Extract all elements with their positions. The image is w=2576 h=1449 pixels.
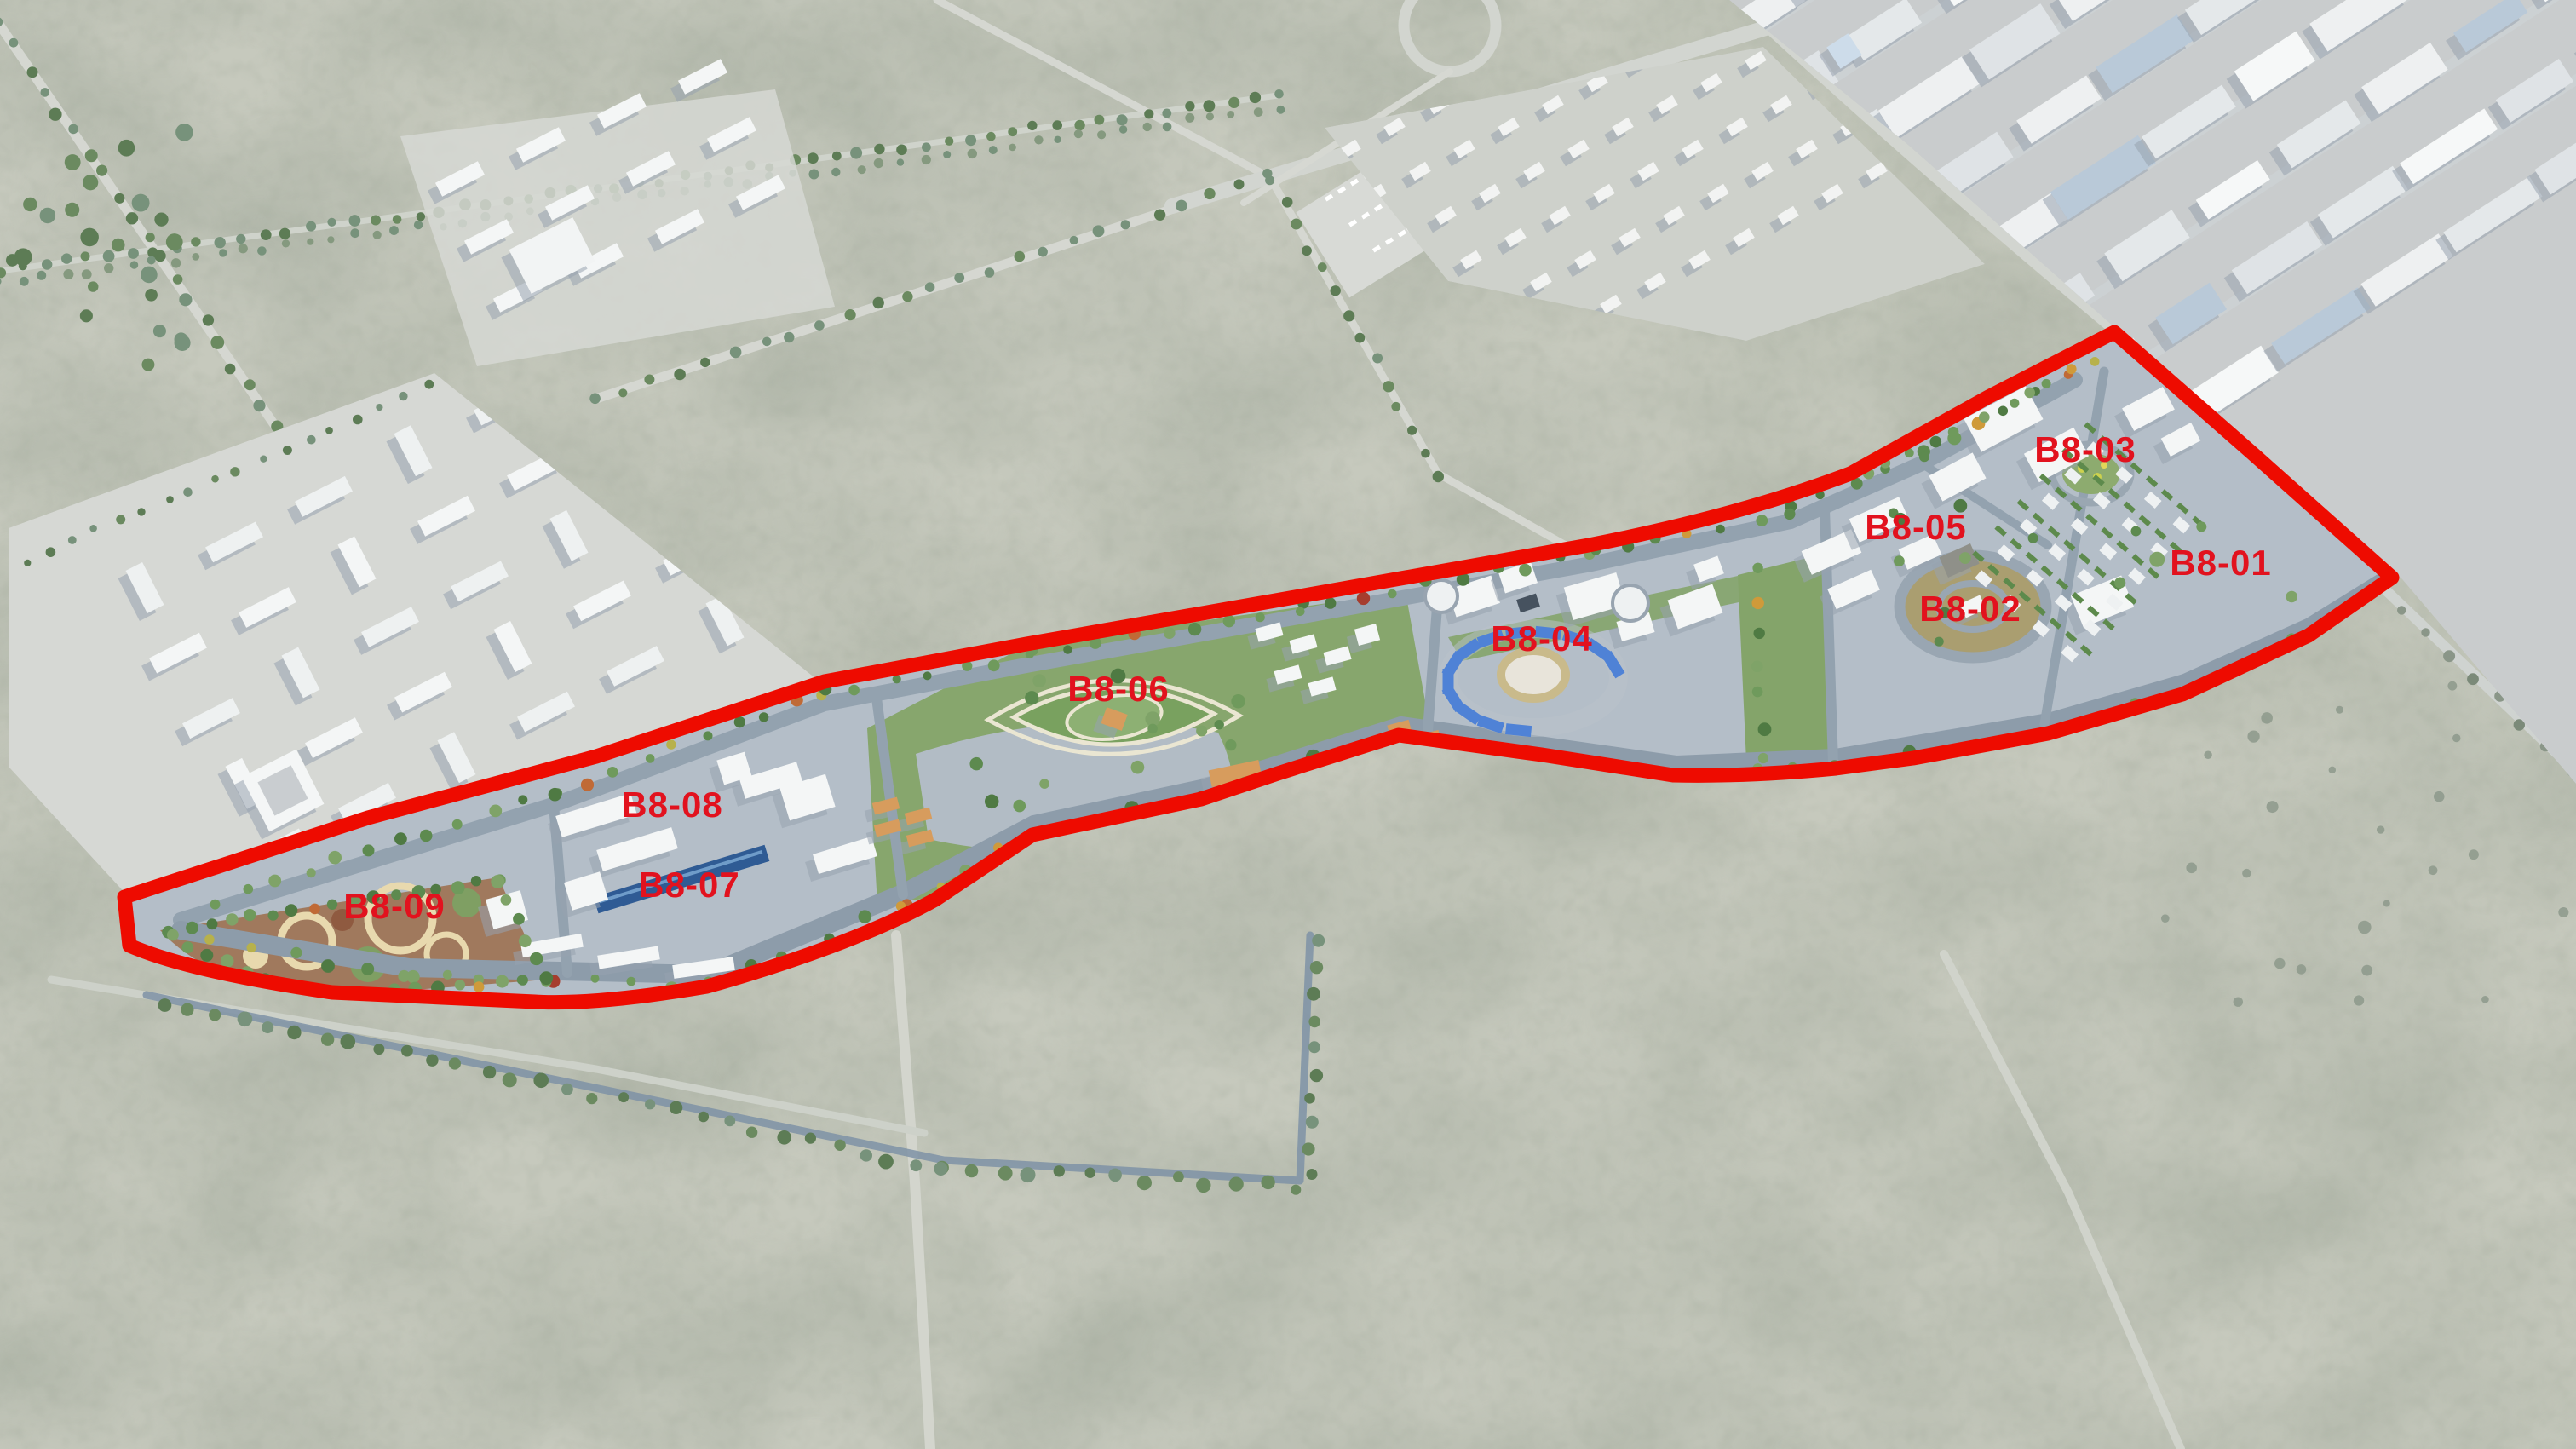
tree <box>1144 109 1153 118</box>
tree <box>873 297 884 308</box>
tree <box>200 949 213 962</box>
tree <box>784 332 794 342</box>
tree <box>1009 144 1016 152</box>
tree <box>455 980 465 990</box>
tree <box>116 515 125 524</box>
tree <box>287 1026 301 1039</box>
tree <box>1306 1116 1319 1129</box>
tree <box>192 253 199 261</box>
tree <box>376 404 382 411</box>
tree <box>257 246 267 256</box>
tree <box>1310 1069 1323 1082</box>
tree <box>371 216 381 226</box>
tree <box>1154 210 1165 221</box>
tree <box>1054 136 1061 143</box>
tree <box>501 894 512 906</box>
tree <box>321 1033 334 1046</box>
tree <box>805 1133 816 1144</box>
tree <box>934 1162 947 1176</box>
tree <box>777 1130 791 1145</box>
tree <box>204 934 215 945</box>
tree <box>1758 753 1768 763</box>
tree <box>181 941 193 953</box>
tree <box>874 144 884 154</box>
parcel-label-b8-07: B8-07 <box>638 865 739 905</box>
tree <box>474 981 485 992</box>
tree <box>363 844 375 856</box>
tree <box>1015 251 1026 262</box>
tree <box>591 975 600 983</box>
tree <box>1176 200 1187 212</box>
tree <box>1185 113 1194 123</box>
tree <box>46 547 56 557</box>
tree <box>1948 427 1959 438</box>
tree <box>49 108 61 121</box>
tree <box>699 1112 710 1123</box>
tree <box>1296 607 1305 617</box>
tree <box>85 149 98 162</box>
tree <box>244 884 254 894</box>
tree <box>858 165 866 174</box>
tree <box>627 977 636 986</box>
tree <box>1754 628 1765 639</box>
tree <box>954 273 964 283</box>
tree <box>1277 106 1285 114</box>
tree <box>1391 402 1400 411</box>
tree <box>910 1159 922 1171</box>
tree <box>878 1154 894 1170</box>
tree <box>1206 112 1214 120</box>
tree <box>1274 89 1284 99</box>
tree <box>61 253 72 263</box>
tree <box>414 221 423 229</box>
tree <box>923 671 932 680</box>
tree <box>1052 120 1062 130</box>
tree <box>373 231 382 239</box>
masterplan-aerial-view: B8-01B8-02B8-03B8-04B8-05B8-06B8-07B8-08… <box>0 0 2576 1449</box>
tree <box>1304 1093 1315 1104</box>
tree <box>618 1092 629 1102</box>
tree <box>179 293 192 306</box>
tree <box>2010 399 2019 408</box>
tree <box>893 675 901 683</box>
tree <box>1074 129 1083 138</box>
tree <box>1308 1016 1320 1028</box>
tree <box>1979 411 1990 423</box>
tree <box>137 508 145 515</box>
tree <box>327 900 337 910</box>
tree <box>285 904 298 917</box>
tree <box>20 277 29 286</box>
tree <box>834 1140 845 1151</box>
tree <box>399 392 407 400</box>
tree <box>350 228 359 238</box>
tree <box>260 456 267 463</box>
tree <box>1117 114 1128 125</box>
tree <box>68 536 77 544</box>
tree <box>1998 406 2009 417</box>
tree <box>221 954 234 968</box>
tree <box>1256 612 1265 622</box>
tree <box>1063 645 1072 653</box>
tree <box>986 132 996 141</box>
tree <box>1318 262 1327 272</box>
tree <box>724 1116 735 1127</box>
tree <box>225 364 236 375</box>
tree <box>211 475 219 483</box>
tree <box>1097 130 1106 139</box>
tree <box>700 358 710 367</box>
tree <box>471 876 481 886</box>
parcel-label-b8-09: B8-09 <box>343 886 445 926</box>
tree <box>674 369 686 381</box>
tree <box>607 767 618 778</box>
tree <box>103 250 115 262</box>
tree <box>1312 934 1325 947</box>
tree <box>1119 125 1127 133</box>
tree <box>988 659 1000 671</box>
tree <box>925 282 935 292</box>
tree <box>646 754 655 763</box>
tree <box>130 261 138 268</box>
tree <box>1291 219 1302 230</box>
tree <box>518 795 527 804</box>
tree <box>1143 123 1152 131</box>
tree <box>561 1084 573 1095</box>
tree <box>965 1164 979 1178</box>
tree <box>581 779 594 791</box>
tree <box>203 314 214 325</box>
tree <box>306 221 316 232</box>
tree <box>666 739 676 749</box>
tree <box>1331 285 1341 296</box>
tree <box>1229 1177 1244 1192</box>
tree <box>1261 1176 1274 1189</box>
tree <box>327 236 334 243</box>
tree <box>389 226 399 235</box>
tree <box>943 151 951 158</box>
tree <box>226 913 238 925</box>
tree <box>449 1057 461 1069</box>
tree <box>896 145 907 156</box>
tree <box>1203 100 1215 112</box>
tree <box>1388 589 1397 599</box>
tree <box>417 212 425 221</box>
tree <box>230 467 239 476</box>
tree <box>586 1093 597 1104</box>
tree <box>1519 564 1532 577</box>
tree <box>589 394 601 405</box>
tree <box>1095 115 1105 125</box>
tree <box>897 158 904 165</box>
parcel-label-b8-08: B8-08 <box>621 785 722 825</box>
tree <box>279 228 290 239</box>
tree <box>1188 623 1201 635</box>
tree <box>24 560 31 566</box>
tree <box>549 788 562 802</box>
tree <box>945 137 953 146</box>
tree <box>27 66 38 78</box>
tree <box>762 337 772 347</box>
tree <box>730 347 742 359</box>
tree <box>1302 1142 1314 1155</box>
tree <box>244 909 256 921</box>
tree <box>1185 101 1194 111</box>
tree <box>1372 354 1383 364</box>
tree <box>207 918 218 929</box>
tree <box>2067 364 2077 374</box>
tree <box>1085 1168 1095 1178</box>
tree <box>236 234 245 244</box>
tree <box>1784 509 1795 520</box>
tree <box>1250 92 1261 103</box>
tree <box>247 943 256 952</box>
tree <box>96 165 107 176</box>
tree <box>539 971 553 985</box>
tree <box>147 247 158 257</box>
tree <box>307 435 316 445</box>
tree <box>533 1073 549 1089</box>
tree <box>860 1149 872 1161</box>
parcel-label-b8-01: B8-01 <box>2170 543 2271 583</box>
tree <box>530 952 543 965</box>
parcel-label-b8-04: B8-04 <box>1491 618 1592 658</box>
tree <box>373 1044 384 1055</box>
tree <box>518 975 528 985</box>
tree <box>2042 379 2051 388</box>
tree <box>307 868 316 877</box>
tree <box>1070 236 1078 244</box>
tree <box>1752 687 1763 698</box>
tree <box>483 1066 496 1078</box>
tree <box>1433 471 1444 482</box>
tree <box>210 336 224 349</box>
tree <box>183 487 193 497</box>
tree <box>2024 388 2035 399</box>
tree <box>1234 179 1245 189</box>
tree <box>670 1101 682 1114</box>
tree <box>1752 563 1762 573</box>
tree <box>503 1072 517 1087</box>
tree <box>848 685 860 696</box>
tree <box>1223 615 1235 627</box>
tree <box>452 819 463 830</box>
parcel-label-b8-06: B8-06 <box>1067 669 1169 709</box>
tree <box>1307 1169 1318 1180</box>
tree <box>349 215 361 227</box>
tree <box>1027 121 1037 130</box>
tree <box>513 913 525 925</box>
tree <box>1196 1178 1210 1193</box>
tree <box>874 158 883 168</box>
tree <box>181 1003 193 1016</box>
tree <box>128 248 139 259</box>
tree <box>2090 357 2100 366</box>
tree <box>845 309 856 320</box>
tree <box>158 998 172 1012</box>
tree <box>147 256 156 265</box>
tree <box>968 149 977 158</box>
tree <box>238 1012 253 1027</box>
tree <box>104 263 113 273</box>
tree <box>307 239 313 245</box>
tree <box>1173 1171 1184 1182</box>
tree <box>239 244 248 253</box>
tree <box>37 271 46 280</box>
tree <box>283 446 292 455</box>
tree <box>328 851 342 865</box>
tree <box>173 274 183 285</box>
tree <box>519 934 532 947</box>
tree <box>309 904 320 915</box>
tree <box>985 267 995 278</box>
tree <box>82 269 92 279</box>
tree <box>1282 197 1293 208</box>
tree <box>1357 592 1370 605</box>
tree <box>859 910 871 923</box>
tree <box>424 380 434 389</box>
tree <box>394 832 407 845</box>
tree <box>146 233 155 242</box>
tree <box>1307 987 1320 1001</box>
tree <box>290 947 302 958</box>
tree <box>1308 1041 1320 1053</box>
tree <box>1021 1167 1036 1182</box>
tree <box>1074 120 1084 130</box>
tree <box>268 875 281 888</box>
tree <box>282 239 290 247</box>
tree <box>2421 628 2429 636</box>
tree <box>1228 97 1239 108</box>
tree <box>1421 449 1430 458</box>
tree <box>321 959 335 973</box>
tree <box>1137 1176 1152 1190</box>
tree <box>1093 225 1105 237</box>
tree <box>1383 381 1394 392</box>
tree <box>1407 426 1417 435</box>
tree <box>1751 661 1763 673</box>
tree <box>209 1009 221 1021</box>
tree <box>746 1127 757 1138</box>
tree <box>1716 525 1725 534</box>
tree <box>1034 135 1043 144</box>
tree <box>1054 1165 1065 1176</box>
tree <box>2443 650 2455 662</box>
parcel-label-b8-02: B8-02 <box>1919 589 2021 629</box>
tree <box>1227 111 1234 118</box>
tree <box>1162 108 1171 118</box>
parcel-label-b8-05: B8-05 <box>1865 507 1966 547</box>
tree <box>210 900 221 910</box>
tree <box>1265 175 1274 185</box>
tree <box>361 963 374 975</box>
tree <box>81 251 90 261</box>
tree <box>68 124 78 135</box>
tree <box>1254 107 1263 117</box>
tree <box>325 427 333 434</box>
tree <box>704 731 713 740</box>
tree <box>171 258 181 267</box>
tree <box>831 168 840 176</box>
tree <box>262 1021 273 1033</box>
tree <box>261 229 272 240</box>
site-plan-svg: B8-01B8-02B8-03B8-04B8-05B8-06B8-07B8-08… <box>0 0 2576 1449</box>
tree <box>814 320 825 331</box>
tree <box>393 215 402 224</box>
tree <box>426 1055 438 1067</box>
tree <box>215 237 226 248</box>
tree <box>253 400 265 411</box>
tree <box>268 911 279 921</box>
tree <box>489 805 502 818</box>
tree <box>922 155 931 164</box>
tree <box>1038 247 1048 257</box>
tree <box>42 259 52 269</box>
tree <box>126 212 138 224</box>
tree <box>998 1166 1013 1181</box>
parcel-label-b8-03: B8-03 <box>2034 429 2136 469</box>
tree <box>398 970 410 982</box>
tree <box>41 88 50 97</box>
tree <box>186 922 198 934</box>
tree <box>644 375 654 385</box>
tree <box>645 1099 655 1109</box>
tree <box>1355 333 1366 343</box>
tree <box>166 496 174 503</box>
tree <box>1343 310 1354 321</box>
tree <box>965 135 976 146</box>
tree <box>2467 673 2479 685</box>
tree <box>759 712 768 722</box>
tree <box>1756 515 1768 526</box>
tree <box>850 147 862 159</box>
tree <box>496 975 509 988</box>
tree <box>1325 597 1336 608</box>
tree <box>922 142 931 152</box>
tree <box>1008 127 1017 136</box>
tree <box>443 970 452 980</box>
tree <box>451 881 465 894</box>
tree <box>89 525 97 532</box>
tree <box>63 269 73 279</box>
tree <box>1752 597 1764 609</box>
tree <box>219 249 227 256</box>
tree <box>244 379 256 390</box>
tree <box>1310 961 1323 974</box>
tree <box>1758 722 1772 736</box>
tree <box>1919 451 1929 462</box>
tree <box>1108 1169 1122 1182</box>
tree <box>832 152 842 161</box>
tree <box>1204 188 1215 199</box>
tree <box>1302 245 1312 256</box>
tree <box>808 152 819 164</box>
tree <box>1163 123 1172 132</box>
tree <box>401 1045 413 1057</box>
tree <box>114 193 124 204</box>
tree <box>989 146 998 154</box>
tree <box>2397 606 2406 614</box>
tree <box>9 38 19 48</box>
tree <box>491 875 504 888</box>
tree <box>1291 1185 1301 1195</box>
tree <box>191 237 200 246</box>
tree <box>327 218 336 227</box>
tree <box>809 170 819 180</box>
tree <box>902 291 912 302</box>
tree <box>167 929 179 941</box>
tree <box>1164 627 1176 639</box>
